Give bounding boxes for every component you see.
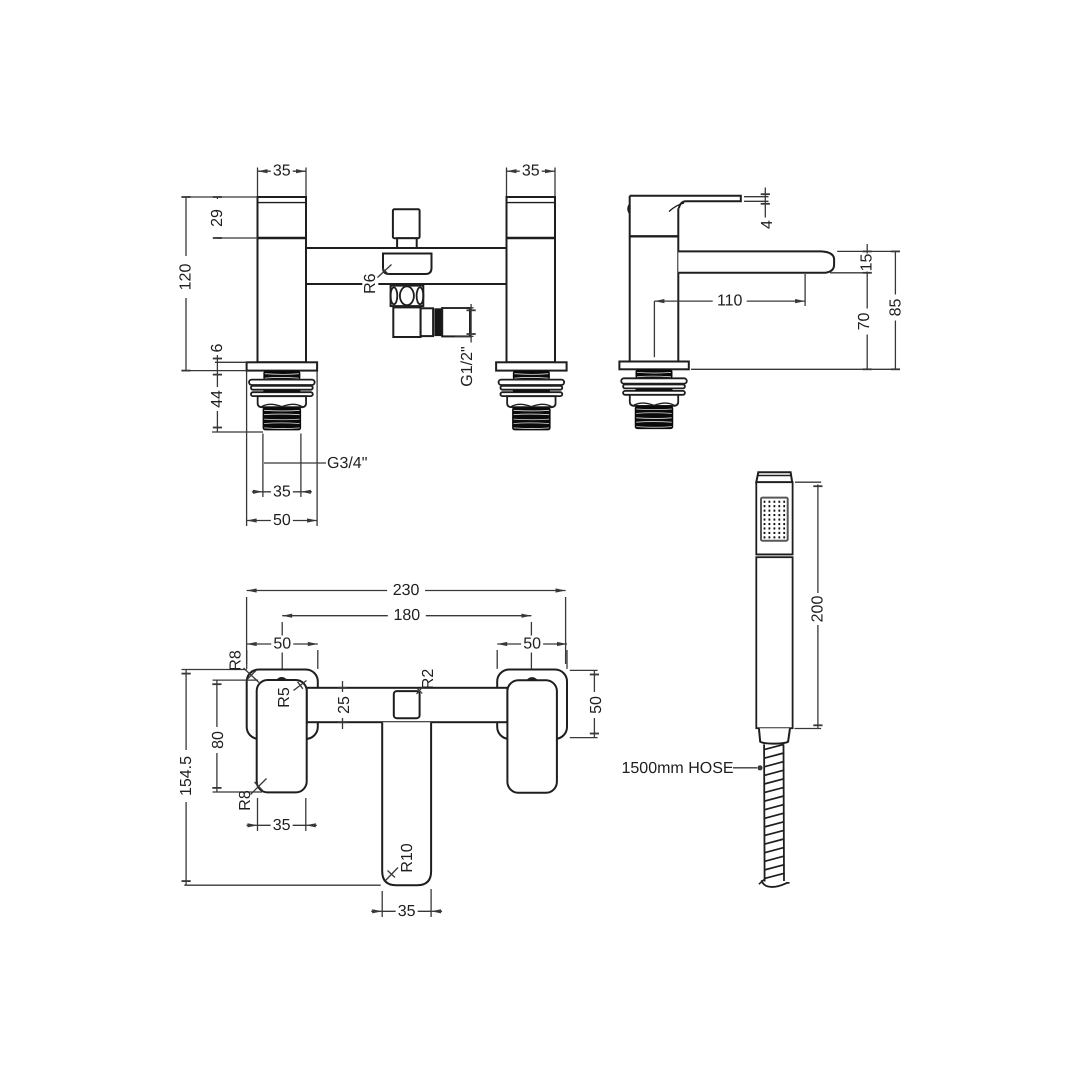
svg-text:50: 50 (273, 636, 291, 653)
svg-text:35: 35 (273, 817, 291, 834)
svg-text:230: 230 (393, 582, 420, 599)
svg-text:200: 200 (809, 596, 826, 623)
svg-text:110: 110 (717, 293, 743, 310)
svg-text:R5: R5 (276, 687, 293, 708)
svg-text:120: 120 (178, 264, 195, 291)
svg-text:R6: R6 (362, 273, 379, 294)
svg-text:29: 29 (209, 209, 226, 227)
svg-text:85: 85 (887, 299, 904, 317)
svg-text:70: 70 (856, 313, 873, 331)
svg-text:154.5: 154.5 (178, 756, 195, 796)
svg-text:35: 35 (522, 163, 540, 180)
svg-text:50: 50 (588, 696, 605, 714)
svg-text:1500mm HOSE: 1500mm HOSE (622, 760, 734, 777)
svg-text:25: 25 (336, 696, 353, 714)
svg-text:180: 180 (393, 607, 420, 624)
svg-text:6: 6 (209, 343, 226, 352)
svg-text:50: 50 (523, 636, 541, 653)
svg-text:G1/2": G1/2" (459, 346, 476, 386)
svg-text:35: 35 (398, 903, 416, 920)
svg-text:R2: R2 (420, 669, 437, 690)
svg-text:4: 4 (759, 220, 776, 229)
svg-text:G3/4": G3/4" (327, 455, 367, 472)
svg-text:R10: R10 (399, 843, 416, 872)
svg-text:80: 80 (210, 731, 227, 749)
svg-text:35: 35 (273, 163, 291, 180)
svg-text:35: 35 (273, 483, 291, 500)
svg-text:15: 15 (859, 254, 876, 272)
svg-text:44: 44 (209, 390, 226, 408)
svg-text:R8: R8 (228, 650, 245, 671)
svg-text:50: 50 (273, 512, 291, 529)
